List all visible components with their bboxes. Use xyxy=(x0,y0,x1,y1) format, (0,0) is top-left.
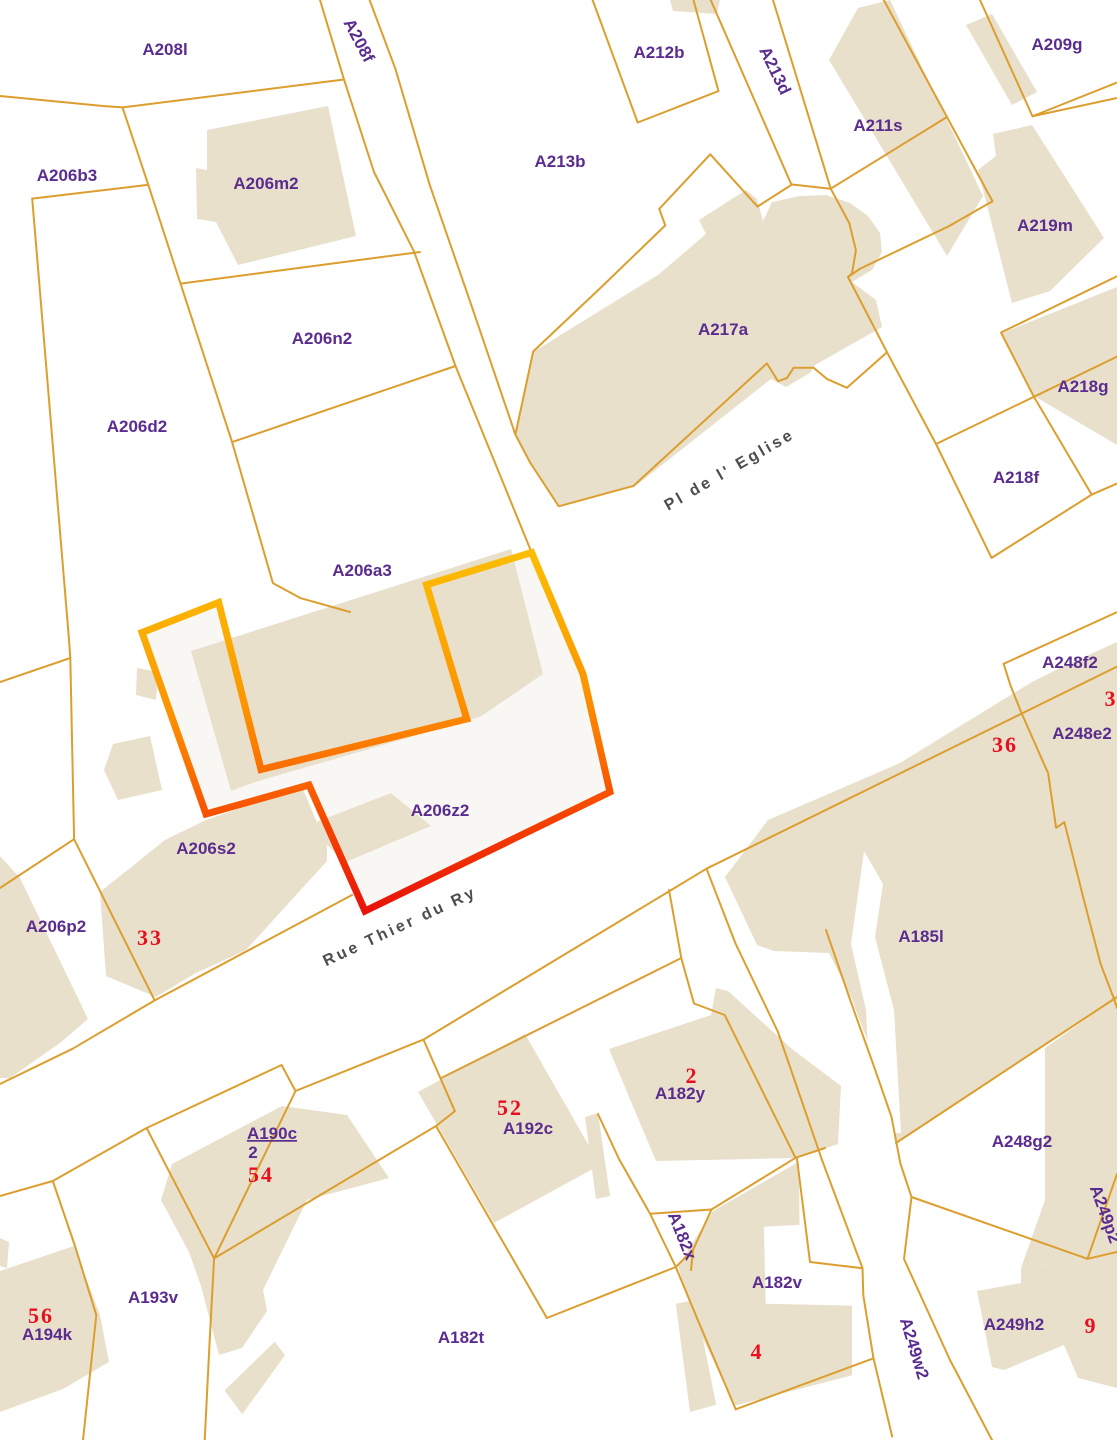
svg-text:A206n2: A206n2 xyxy=(292,329,352,348)
svg-text:2: 2 xyxy=(686,1063,699,1088)
svg-text:33: 33 xyxy=(137,925,163,950)
svg-text:A218g: A218g xyxy=(1057,377,1108,396)
svg-text:A209g: A209g xyxy=(1031,35,1082,54)
svg-text:A217a: A217a xyxy=(698,320,749,339)
svg-text:A206m2: A206m2 xyxy=(233,174,298,193)
svg-text:A206z2: A206z2 xyxy=(411,801,470,820)
svg-text:A212b: A212b xyxy=(633,43,684,62)
svg-text:A206d2: A206d2 xyxy=(107,417,167,436)
svg-text:36: 36 xyxy=(992,732,1018,757)
svg-text:A206p2: A206p2 xyxy=(26,917,86,936)
svg-text:A190c: A190c xyxy=(247,1124,297,1143)
svg-text:A192c: A192c xyxy=(503,1119,553,1138)
svg-text:A208l: A208l xyxy=(142,40,187,59)
svg-text:A206a3: A206a3 xyxy=(332,561,392,580)
svg-text:A193v: A193v xyxy=(128,1288,179,1307)
svg-text:2: 2 xyxy=(248,1143,257,1162)
svg-text:52: 52 xyxy=(497,1095,523,1120)
svg-text:A219m: A219m xyxy=(1017,216,1073,235)
svg-text:A206b3: A206b3 xyxy=(37,166,97,185)
svg-text:A248e2: A248e2 xyxy=(1052,724,1112,743)
svg-text:A248f2: A248f2 xyxy=(1042,653,1098,672)
svg-text:4: 4 xyxy=(751,1339,764,1364)
svg-text:9: 9 xyxy=(1085,1313,1098,1338)
svg-text:A185l: A185l xyxy=(898,927,943,946)
svg-text:A249h2: A249h2 xyxy=(984,1315,1044,1334)
svg-text:A213b: A213b xyxy=(534,152,585,171)
svg-text:A182t: A182t xyxy=(438,1328,485,1347)
svg-text:A211s: A211s xyxy=(853,116,902,135)
svg-text:A182v: A182v xyxy=(752,1273,803,1292)
svg-text:56: 56 xyxy=(28,1303,54,1328)
svg-text:A206s2: A206s2 xyxy=(176,839,236,858)
svg-text:3: 3 xyxy=(1105,686,1117,711)
svg-text:54: 54 xyxy=(248,1162,274,1187)
svg-text:A218f: A218f xyxy=(993,468,1040,487)
svg-text:A248g2: A248g2 xyxy=(992,1132,1052,1151)
